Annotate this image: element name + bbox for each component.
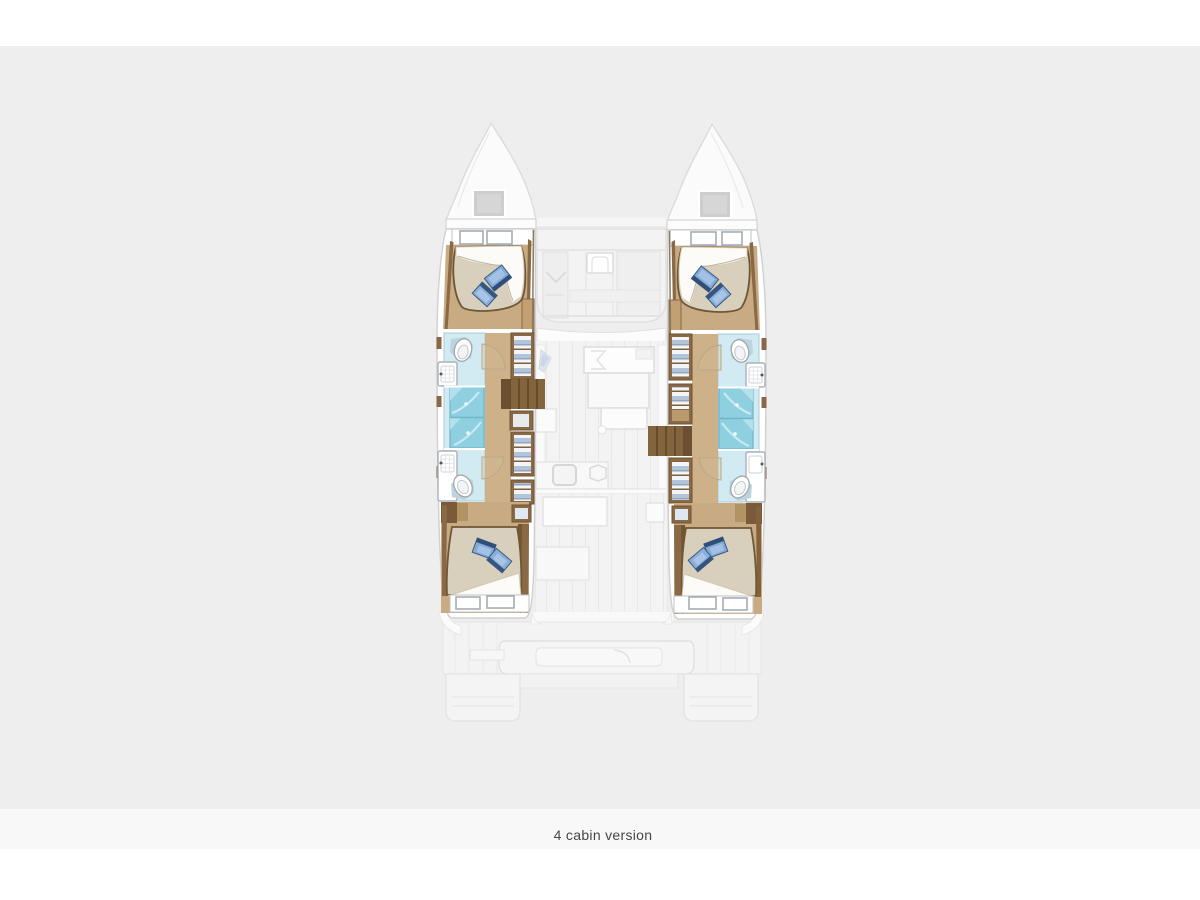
svg-text:4 cabin version: 4 cabin version (554, 827, 653, 843)
